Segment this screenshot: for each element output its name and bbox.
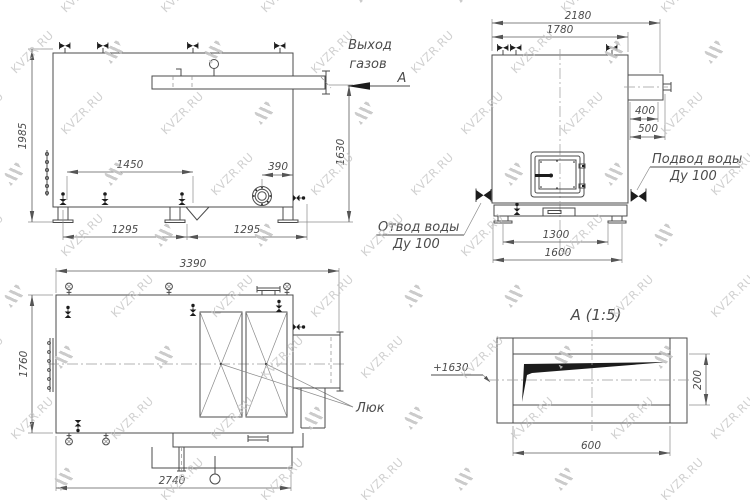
elevation-mark: +1630 (431, 362, 490, 382)
dim-text-600: 600 (581, 440, 601, 452)
side-tap-icon (293, 195, 305, 202)
weld-wedge-icon (522, 362, 668, 402)
support-legs-side (53, 207, 298, 223)
plan-valve-icon (66, 433, 73, 445)
plan-valve-icon (66, 283, 73, 295)
dim-text-elevation: +1630 (433, 362, 469, 374)
dim-text-3390: 3390 (180, 258, 207, 270)
front-view: 2180 1780 400 500 1300 1600 (376, 10, 742, 263)
dim-text-400: 400 (635, 105, 655, 117)
flue-duct-plan (293, 332, 344, 428)
dim-text-1985: 1985 (17, 122, 29, 149)
safety-valve-icon (188, 42, 199, 53)
base-frame-front (494, 205, 627, 223)
tap-icon (65, 306, 72, 318)
label-detail-title: А (1:5) (570, 306, 622, 324)
label-gas-outlet-line1: Выход (348, 38, 392, 53)
label-water-outlet-line2: Ду 100 (392, 237, 440, 252)
plan-valve-icon (103, 433, 110, 445)
hatch-left (200, 312, 242, 417)
dim-text-1295-left: 1295 (112, 224, 139, 236)
dim-390: 390 (262, 161, 293, 187)
side-left-flange-cover (46, 150, 54, 196)
dim-text-1300: 1300 (543, 229, 570, 241)
label-section-letter: А (397, 71, 407, 86)
callout-water-inlet: Подвод воды Ду 100 (637, 152, 742, 190)
side-view: 1985 1450 390 1295 1295 (17, 38, 410, 240)
section-arrow-icon (347, 82, 370, 89)
safety-valve-icon (511, 44, 522, 55)
dim-200: 200 (689, 354, 710, 405)
boiler-technical-drawing: 1985 1450 390 1295 1295 (0, 0, 750, 500)
dim-text-1450: 1450 (117, 159, 144, 171)
chimney-stub-plan (257, 286, 280, 295)
label-water-inlet-line1: Подвод воды (652, 152, 742, 167)
dim-1300: 1300 (503, 224, 608, 245)
dim-text-2740: 2740 (159, 475, 186, 487)
drawing-sheet: 1985 1450 390 1295 1295 (0, 0, 750, 500)
detail-a-view: А (1:5) +1630 200 (431, 306, 710, 456)
flue-outlet-front (624, 75, 671, 100)
label-gas-outlet-line2: газов (349, 57, 386, 72)
dim-text-1600: 1600 (545, 247, 572, 259)
plan-valve-icon (166, 283, 173, 295)
safety-valve-icon (60, 42, 71, 53)
dim-text-1780: 1780 (547, 24, 574, 36)
dim-1630: 1630 (297, 85, 353, 222)
drain-valve-icon (101, 192, 108, 205)
burner-flange (253, 187, 272, 206)
safety-valve-icon (498, 44, 509, 55)
water-inlet-fitting (631, 189, 646, 203)
gauge-port-icon (210, 60, 219, 69)
dim-text-390: 390 (268, 161, 288, 173)
flue-section (488, 330, 697, 431)
dim-500: 500 (630, 94, 665, 140)
section-view-arrow: А (347, 71, 410, 90)
tap-icon (276, 300, 283, 312)
tap-icon (75, 420, 82, 432)
dim-text-1630: 1630 (335, 138, 347, 165)
callout-water-outlet: Отвод воды Ду 100 (376, 203, 481, 252)
dim-2180: 2180 (492, 10, 660, 73)
gas-outlet-duct (152, 60, 331, 95)
plan-left-flange (48, 338, 53, 392)
dim-text-1760: 1760 (18, 350, 30, 377)
water-outlet-fitting (476, 189, 491, 203)
safety-valve-icon (98, 42, 109, 53)
dim-1760: 1760 (18, 295, 53, 433)
dim-text-500: 500 (638, 123, 658, 135)
tap-icon (293, 324, 305, 331)
dim-text-2180: 2180 (565, 10, 592, 22)
safety-valve-icon (275, 42, 286, 53)
dim-600: 600 (513, 426, 670, 456)
label-water-inlet-line2: Ду 100 (669, 169, 717, 184)
dim-1985: 1985 (17, 49, 53, 222)
label-water-outlet-line1: Отвод воды (378, 220, 459, 235)
plan-view: Люк (18, 258, 385, 491)
door-handle-icon (535, 174, 551, 177)
furnace-door (531, 152, 585, 197)
tap-icon (190, 304, 197, 316)
plan-valve-icon (284, 283, 291, 295)
dim-text-1295-right: 1295 (234, 224, 261, 236)
dim-1450: 1450 (67, 159, 193, 203)
label-hatch: Люк (355, 401, 385, 416)
safety-valve-icon (607, 44, 618, 55)
drain-valve-icon (178, 192, 185, 205)
dim-text-200: 200 (692, 370, 704, 390)
drain-valve-icon (59, 192, 66, 205)
